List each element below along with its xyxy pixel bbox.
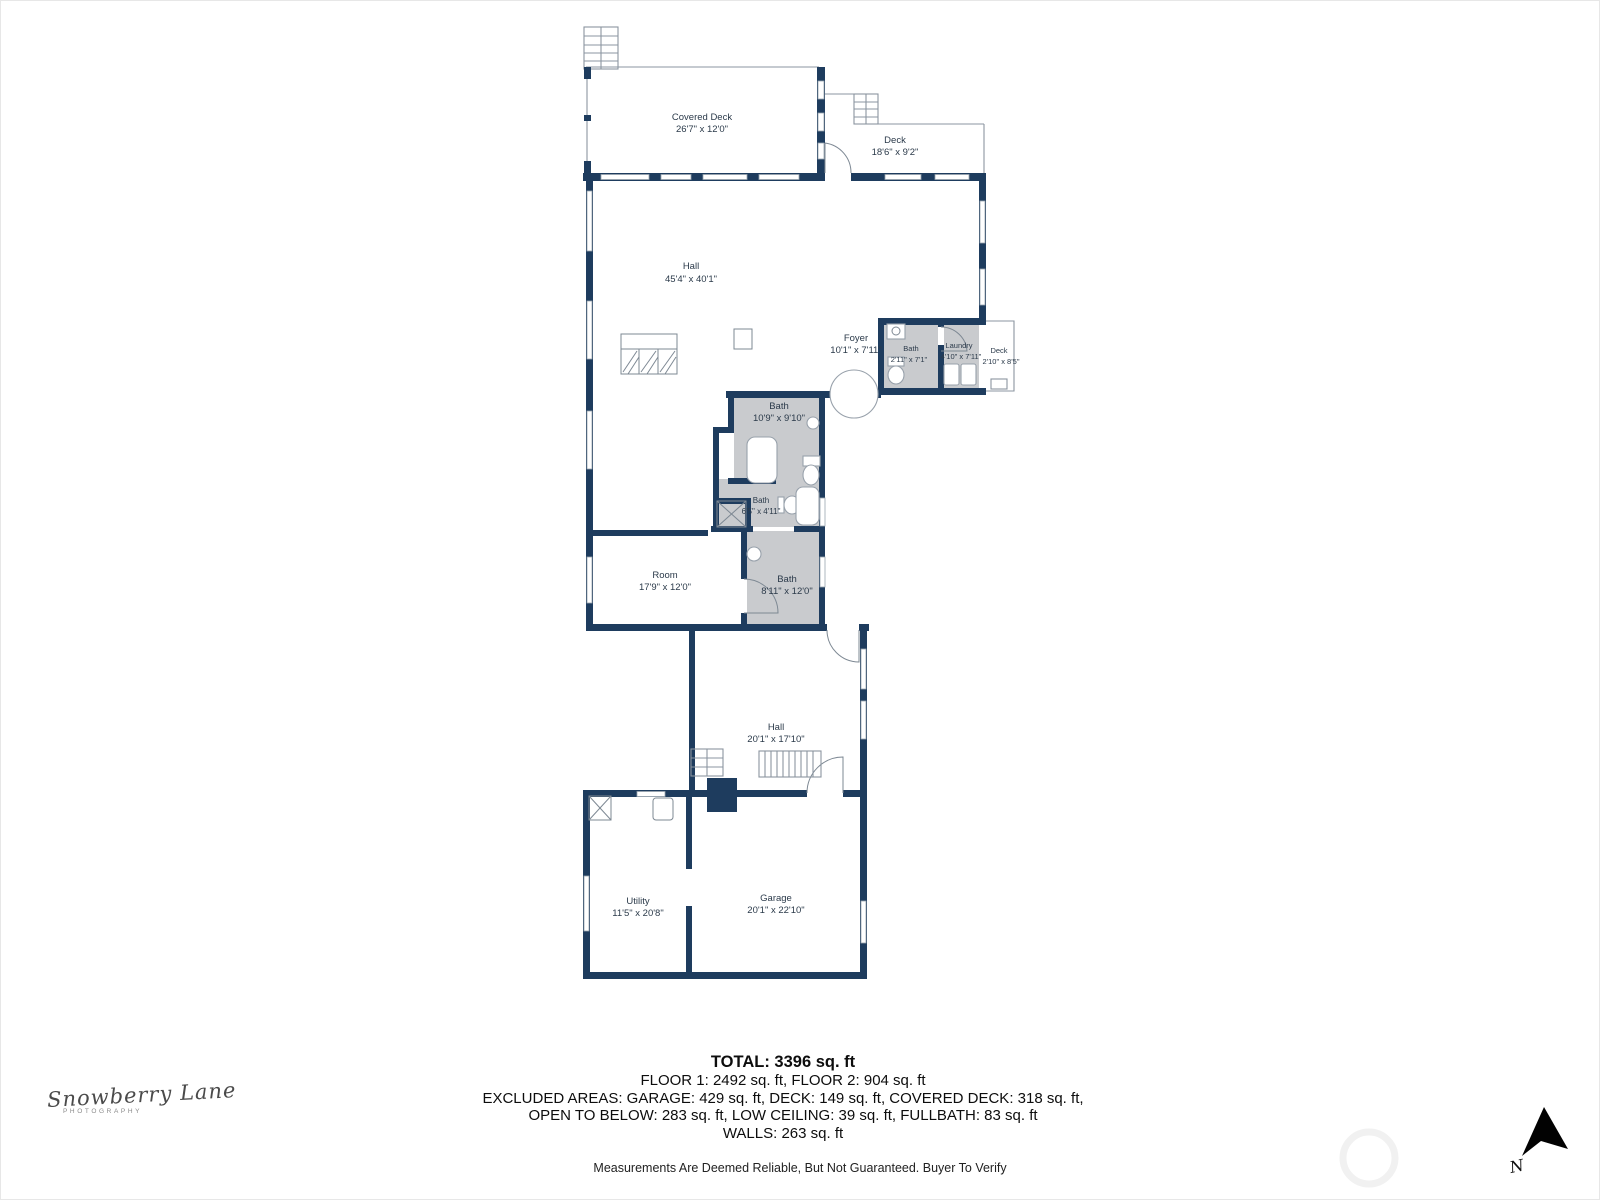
utility-fixture <box>653 798 673 820</box>
stairs-upper-left <box>584 27 618 69</box>
label-garage-dims: 20'1" x 22'10" <box>747 905 804 916</box>
label-bath-lower-dims: 8'11" x 12'0" <box>761 586 812 597</box>
floorplan-drawing: Covered Deck 26'7" x 12'0" Deck 18'6" x … <box>1 1 1599 1199</box>
dryer <box>961 364 976 385</box>
label-utility-dims: 11'5" x 20'8" <box>612 908 663 919</box>
disclaimer-text: Measurements Are Deemed Reliable, But No… <box>1 1161 1599 1175</box>
label-bath-hall-dims: 2'11" x 7'1" <box>891 355 928 364</box>
label-room-dims: 17'9" x 12'0" <box>639 582 691 593</box>
label-utility: Utility <box>626 896 649 907</box>
photographer-logo: Snowberry Lane PHOTOGRAPHY <box>47 1083 236 1115</box>
label-deck-upper-dims: 18'6" x 9'2" <box>872 147 919 158</box>
door-arc-deck <box>825 143 851 173</box>
chimney-block <box>707 778 737 812</box>
label-covered-deck-dims: 26'7" x 12'0" <box>676 124 728 135</box>
deck-side-outline <box>986 321 1014 391</box>
bathtub-upper <box>747 437 777 483</box>
summary-walls: WALLS: 263 sq. ft <box>1 1125 1565 1143</box>
label-bath-mid-dims: 6'5" x 4'11" <box>742 507 781 516</box>
label-hall-lower: Hall <box>768 722 784 733</box>
label-bath-upper: Bath <box>769 401 789 412</box>
door-arc-garage <box>807 757 843 793</box>
label-laundry: Laundry <box>945 341 972 350</box>
logo-script-text: Snowberry Lane <box>47 1078 237 1112</box>
label-foyer: Foyer <box>844 333 868 344</box>
label-hall-lower-dims: 20'1" x 17'10" <box>747 734 804 745</box>
label-bath-lower: Bath <box>777 574 797 585</box>
water-heater <box>589 796 611 820</box>
label-hall-main: Hall <box>683 261 699 272</box>
label-covered-deck: Covered Deck <box>672 112 732 123</box>
stairs-lower <box>691 749 821 777</box>
label-garage: Garage <box>760 893 792 904</box>
door-swing-foyer <box>830 370 878 418</box>
label-deck-upper: Deck <box>884 135 906 146</box>
label-hall-main-dims: 45'4" x 40'1" <box>665 274 717 285</box>
fireplace <box>621 334 677 374</box>
stairs-deck <box>824 94 984 173</box>
label-foyer-dims: 10'1" x 7'11" <box>830 345 881 356</box>
sink-lower <box>747 547 761 561</box>
label-bath-mid: Bath <box>753 496 769 505</box>
bathtub-mid <box>796 487 819 525</box>
floorplan-page: Covered Deck 26'7" x 12'0" Deck 18'6" x … <box>0 0 1600 1200</box>
toilet-bowl-hall <box>888 366 904 384</box>
washer <box>944 364 959 385</box>
vanity-hall-bath <box>887 324 905 339</box>
summary-total: TOTAL: 3396 sq. ft <box>1 1053 1565 1072</box>
label-laundry-dims: 4'10" x 7'11" <box>941 352 982 361</box>
label-bath-upper-dims: 10'9" x 9'10" <box>753 413 805 424</box>
label-deck-side-dims: 2'10" x 8'5" <box>983 357 1020 366</box>
label-bath-hall: Bath <box>903 344 918 353</box>
column <box>734 329 752 349</box>
door-arc-hall-lower <box>827 630 859 662</box>
label-deck-side: Deck <box>990 346 1007 355</box>
toilet-bowl-upper <box>803 465 819 485</box>
sink-upper <box>807 417 819 429</box>
label-room: Room <box>652 570 677 581</box>
